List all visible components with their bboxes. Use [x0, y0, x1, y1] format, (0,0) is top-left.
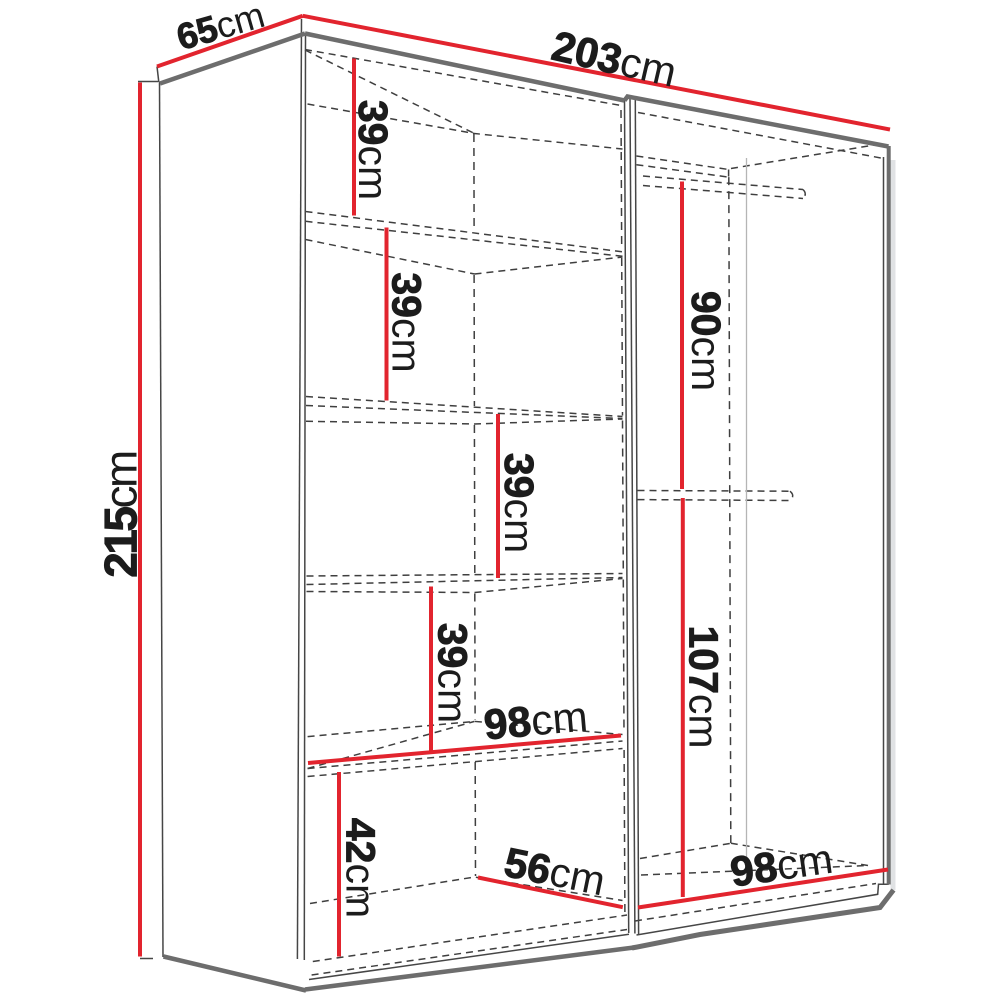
svg-text:56cm: 56cm [500, 838, 609, 904]
svg-text:203cm: 203cm [548, 22, 681, 96]
svg-text:39cm: 39cm [350, 100, 396, 200]
svg-text:90cm: 90cm [683, 291, 729, 391]
svg-text:42cm: 42cm [338, 818, 384, 918]
svg-text:215cm: 215cm [95, 452, 147, 578]
svg-text:39cm: 39cm [384, 272, 430, 372]
svg-text:107cm: 107cm [681, 625, 727, 748]
svg-text:98cm: 98cm [482, 694, 590, 750]
svg-text:39cm: 39cm [496, 453, 542, 553]
svg-text:98cm: 98cm [727, 835, 835, 896]
svg-text:39cm: 39cm [430, 623, 476, 723]
